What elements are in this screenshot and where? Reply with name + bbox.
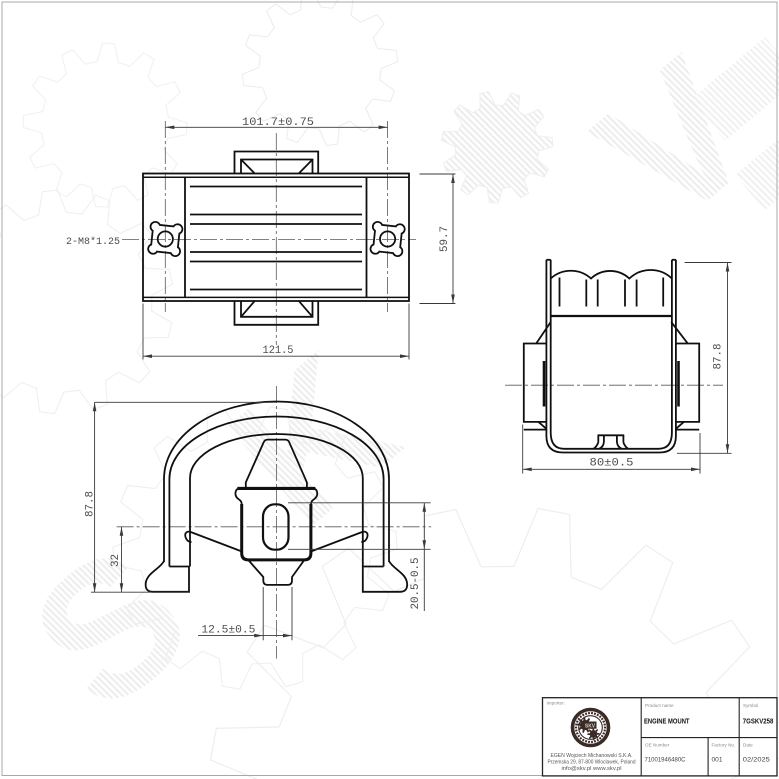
- svg-text:02/2025: 02/2025: [743, 757, 770, 764]
- svg-text:121.5: 121.5: [263, 345, 294, 357]
- svg-text:20.5-0.5: 20.5-0.5: [410, 558, 422, 610]
- svg-text:SKV: SKV: [585, 724, 596, 730]
- svg-text:Symbol: Symbol: [743, 703, 758, 708]
- svg-text:Product name: Product name: [645, 703, 674, 708]
- svg-text:2-M8*1.25: 2-M8*1.25: [66, 236, 120, 248]
- svg-text:info@skv.pl www.skv.pl: info@skv.pl www.skv.pl: [562, 766, 622, 772]
- svg-text:Factory No.: Factory No.: [712, 743, 736, 748]
- svg-text:80±0.5: 80±0.5: [590, 458, 634, 470]
- svg-text:12.5±0.5: 12.5±0.5: [201, 625, 255, 637]
- svg-text:7GSKV258: 7GSKV258: [743, 717, 774, 726]
- svg-text:Importer:: Importer:: [547, 701, 565, 706]
- svg-text:101.7±0.75: 101.7±0.75: [242, 117, 314, 129]
- svg-text:59.7: 59.7: [439, 226, 451, 252]
- svg-text:OE Number: OE Number: [645, 743, 670, 748]
- svg-text:ENGINE MOUNT: ENGINE MOUNT: [644, 717, 690, 726]
- svg-text:87.8: 87.8: [85, 491, 97, 517]
- svg-text:71001946480C: 71001946480C: [645, 757, 686, 764]
- svg-text:Przemska 29, 87-800 Wloclawek,: Przemska 29, 87-800 Wloclawek, Poland: [548, 760, 636, 766]
- svg-text:001: 001: [712, 757, 723, 764]
- svg-text:32: 32: [110, 554, 122, 567]
- svg-text:Date: Date: [743, 743, 753, 748]
- svg-text:EGEN Wojciech Michanowski S.K.: EGEN Wojciech Michanowski S.K.A.: [551, 753, 633, 759]
- svg-text:87.8: 87.8: [713, 344, 725, 370]
